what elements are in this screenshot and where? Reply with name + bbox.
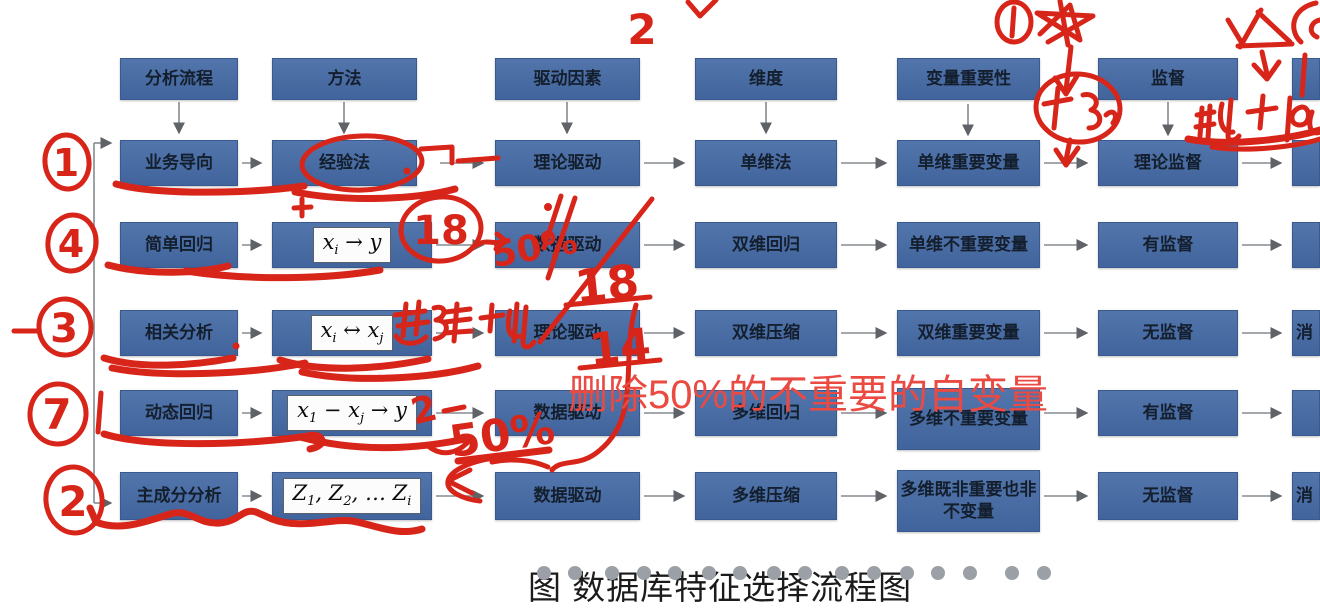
- formula-box: xi → y: [272, 222, 432, 268]
- svg-text:2: 2: [58, 477, 87, 526]
- flow-box: 数据驱动: [495, 472, 640, 520]
- flow-box: 单维法: [695, 140, 837, 186]
- slide-canvas: 分析流程 方法 驱动因素 维度 变量重要性 监督 业务导向 简单回归 相关分析 …: [0, 0, 1320, 610]
- header-analysis-process: 分析流程: [120, 58, 238, 100]
- svg-text:1: 1: [53, 141, 79, 185]
- header-supervision: 监督: [1098, 58, 1238, 100]
- flow-box: 动态回归: [120, 390, 238, 436]
- flow-box: 业务导向: [120, 140, 238, 186]
- pager-dot: [537, 566, 551, 580]
- flow-box: 理论驱动: [495, 310, 640, 356]
- flow-box-cutoff: [1292, 222, 1320, 268]
- flow-box: 双维回归: [695, 222, 837, 268]
- flow-box: 简单回归: [120, 222, 238, 268]
- flow-box: 相关分析: [120, 310, 238, 356]
- flow-box: 理论监督: [1098, 140, 1238, 186]
- circled-marker-3: 3: [14, 297, 93, 356]
- flow-box: 双维压缩: [695, 310, 837, 356]
- pager-dot: [900, 566, 914, 580]
- flow-box: 多维压缩: [695, 472, 837, 520]
- flow-box: 双维重要变量: [897, 310, 1040, 356]
- flow-box: 无监督: [1098, 472, 1238, 520]
- pager-dot: [798, 566, 812, 580]
- circled-marker-5: 2: [42, 464, 106, 536]
- pager-dot: [668, 566, 682, 580]
- pager-dot: [1037, 566, 1051, 580]
- circled-marker-1: 1: [42, 133, 91, 191]
- figure-caption: 图 数据库特征选择流程图: [528, 561, 912, 609]
- svg-text:7: 7: [42, 390, 71, 439]
- flow-box-cutoff: 消: [1292, 472, 1320, 520]
- flow-box: 主成分分析: [120, 472, 238, 520]
- pager-dot: [835, 566, 849, 580]
- flow-box: 有监督: [1098, 390, 1238, 436]
- header-method: 方法: [272, 58, 417, 100]
- flow-box-cutoff: [1292, 390, 1320, 436]
- top-center-ink: 2: [627, 0, 716, 54]
- header-driving-factor: 驱动因素: [495, 58, 640, 100]
- formula-box: xi ↔ xj: [272, 310, 432, 356]
- svg-text:2: 2: [627, 5, 656, 54]
- flow-box: 理论驱动: [495, 140, 640, 186]
- flow-box: 经验法: [272, 140, 417, 186]
- pager-dot: [867, 566, 881, 580]
- flow-box: 有监督: [1098, 222, 1238, 268]
- flow-box: 无监督: [1098, 310, 1238, 356]
- flow-box: 数据驱动: [495, 222, 640, 268]
- svg-text:3: 3: [50, 306, 78, 352]
- pager-dot: [767, 566, 781, 580]
- flow-box: 单维不重要变量: [897, 222, 1040, 268]
- pager-dot: [568, 566, 582, 580]
- circled-marker-4: 7: [27, 382, 101, 447]
- pager-dot: [605, 566, 619, 580]
- pager-dot: [1005, 566, 1019, 580]
- header-dimension: 维度: [695, 58, 837, 100]
- svg-text:4: 4: [58, 222, 84, 266]
- circled-marker-2: 4: [44, 212, 99, 274]
- flow-box-cutoff: 消: [1292, 310, 1320, 356]
- formula-box: x1 − xj → y: [272, 390, 432, 436]
- formula-box: Z1, Z2, … Zi: [272, 472, 432, 520]
- pager-dot: [963, 566, 977, 580]
- pager-dot: [931, 566, 945, 580]
- header-variable-importance: 变量重要性: [897, 58, 1040, 100]
- header-cutoff: [1292, 58, 1320, 100]
- pager-dot: [702, 566, 716, 580]
- flow-box-cutoff: [1292, 140, 1320, 186]
- flow-box: 单维重要变量: [897, 140, 1040, 186]
- flow-box: 多维既非重要也非不变量: [897, 470, 1040, 532]
- pager-dot: [733, 566, 747, 580]
- pager-dot: [637, 566, 651, 580]
- red-overlay-note: 删除50%的不重要的自变量: [568, 362, 1048, 420]
